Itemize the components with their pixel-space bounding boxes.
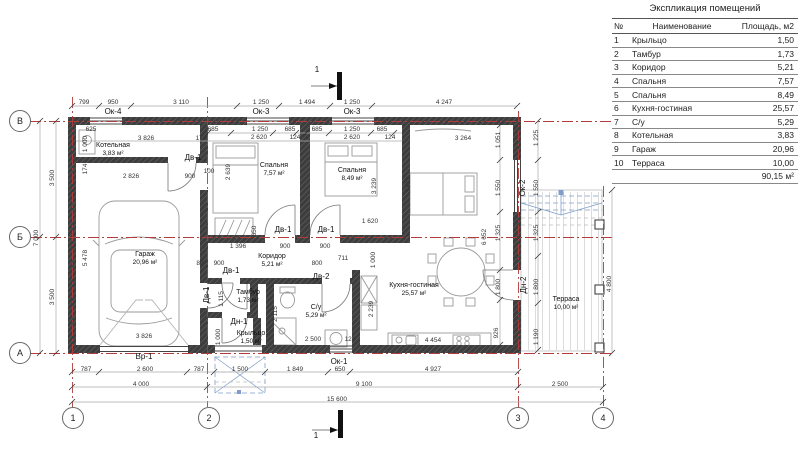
dimension-label: 4 927: [425, 367, 441, 374]
dimension-label: 1 225: [534, 130, 541, 146]
dimension-label: 6 652: [482, 229, 489, 245]
opening-tag: Ок-1: [331, 358, 348, 366]
opening-tag: Дн-1: [231, 318, 248, 326]
dimension-label: 7 000: [34, 230, 41, 246]
room-label: Терраса10,00 м²: [553, 295, 580, 313]
dimension-label: 3 500: [50, 289, 57, 305]
opening-tag: Дв-1: [203, 287, 211, 304]
dimension-label: 174: [196, 136, 207, 143]
dimension-label: 3 826: [136, 334, 152, 341]
dimension-label: 800: [312, 261, 323, 268]
room-label: Котельная3,83 м²: [96, 141, 130, 159]
dimension-label: 1 250: [344, 100, 360, 107]
dimension-label: 787: [194, 367, 205, 374]
dimension-label: 5 478: [83, 250, 90, 266]
dimension-label: 100: [204, 169, 215, 176]
dimension-label: 1 325: [496, 225, 503, 241]
opening-tag: Ок-3: [253, 108, 270, 116]
dimension-label: 1 800: [496, 279, 503, 295]
room-label: Кухня-гостиная25,57 м²: [389, 281, 439, 299]
table-row: 8Котельная3,83: [612, 129, 798, 143]
dimension-label: 3 413: [406, 177, 413, 193]
dimension-label: 650: [252, 226, 259, 237]
dimension-label: 1 550: [534, 180, 541, 196]
dimension-label: 1 250: [344, 127, 360, 134]
schedule-rows: 1Крыльцо1,502Тамбур1,733Коридор5,214Спал…: [612, 34, 798, 170]
grid-bubble: А: [9, 342, 31, 364]
dimension-label: 1 190: [534, 329, 541, 345]
table-row: 7С/у5,29: [612, 116, 798, 130]
dimension-label: 900: [280, 244, 291, 251]
grid-bubble: Б: [9, 226, 31, 248]
table-row: 4Спальня7,57: [612, 75, 798, 89]
dimension-label: 685: [285, 127, 296, 134]
opening-tag: Вр-1: [136, 353, 153, 361]
room-label: Коридор5,21 м²: [258, 252, 286, 270]
room-label: Спальня8,49 м²: [338, 166, 366, 184]
grid-bubble: В: [9, 110, 31, 132]
dimension-label: 80: [196, 261, 203, 268]
dimension-label: 1 849: [287, 367, 303, 374]
schedule-total: 90,15 м²: [612, 170, 798, 184]
dimension-label: 1 250: [253, 100, 269, 107]
room-schedule-table: Экспликация помещений № Наименование Пло…: [612, 3, 798, 184]
opening-tag: Ок-4: [105, 108, 122, 116]
dimension-label: 2 620: [251, 135, 267, 142]
opening-tag: Ок-3: [344, 108, 361, 116]
dimension-label: 650: [335, 367, 346, 374]
dimension-label: 3 264: [455, 136, 471, 143]
dimension-label: 787: [81, 367, 92, 374]
dimension-label: 124: [290, 135, 301, 142]
grid-bubble: 2: [198, 407, 220, 429]
schedule-header: № Наименование Площадь, м2: [612, 18, 798, 34]
table-row: 10Терраса10,00: [612, 156, 798, 170]
dimension-label: 1 115: [219, 291, 226, 307]
opening-tag: Дв-1: [185, 154, 202, 162]
dimension-label: 1 500: [232, 367, 248, 374]
dimension-label: 124: [385, 135, 396, 142]
table-row: 5Спальня8,49: [612, 88, 798, 102]
dimension-label: 685: [208, 127, 219, 134]
opening-tag: Дн-2: [520, 277, 528, 294]
opening-tag: Дв-1: [223, 267, 240, 275]
table-row: 1Крыльцо1,50: [612, 34, 798, 48]
opening-tag: Дв-1: [275, 226, 292, 234]
dimension-label: 1 800: [534, 279, 541, 295]
dimension-label: 2 639: [226, 164, 233, 180]
room-label: Крыльцо1,50 м²: [237, 329, 266, 347]
dimension-label: 4 454: [425, 338, 441, 345]
grid-bubble: 3: [507, 407, 529, 429]
dimension-label: 1 494: [299, 100, 315, 107]
dimension-label: 685: [312, 127, 323, 134]
dimension-label: 9 100: [356, 382, 372, 389]
dimension-label: 1 396: [230, 244, 246, 251]
room-label: С/у5,29 м²: [305, 303, 326, 321]
dimension-label: 926: [494, 328, 501, 339]
opening-tag: Дв-1: [318, 226, 335, 234]
dimension-label: 2 500: [552, 382, 568, 389]
dimension-label: 3 500: [50, 170, 57, 186]
dimension-label: 1 250: [252, 127, 268, 134]
dimension-label: 1 000: [216, 329, 223, 345]
dimension-label: 15 600: [327, 397, 347, 404]
section-label: 1: [314, 432, 318, 440]
schedule-header-area: Площадь, м2: [732, 21, 798, 31]
dimension-label: 4 247: [436, 100, 452, 107]
table-row: 9Гараж20,96: [612, 143, 798, 157]
grid-bubble: 1: [62, 407, 84, 429]
dimension-label: 625: [86, 127, 97, 134]
dimension-label: 1 000: [83, 136, 90, 152]
room-label: Тамбур1,73 м²: [236, 288, 260, 306]
dimension-label: 1 620: [362, 219, 378, 226]
grid-bubble: 4: [592, 407, 614, 429]
dimension-label: 711: [338, 256, 348, 263]
dimension-label: 1 051: [496, 132, 503, 148]
table-row: 6Кухня-гостиная25,57: [612, 102, 798, 116]
schedule-title: Экспликация помещений: [612, 3, 798, 14]
dimension-label: 900: [185, 174, 196, 181]
dimension-label: 2 500: [305, 337, 321, 344]
room-label: Гараж20,96 м²: [133, 250, 158, 268]
dimension-label: 3 110: [173, 100, 189, 107]
table-row: 2Тамбур1,73: [612, 48, 798, 62]
opening-tag: Дв-2: [313, 273, 330, 281]
section-label: 1: [315, 66, 319, 74]
dimension-label: 799: [79, 100, 90, 107]
dimension-label: 1 325: [534, 225, 541, 241]
dimension-label: 174: [83, 164, 90, 175]
dimension-label: 2 600: [137, 367, 153, 374]
dimension-label: 1 000: [371, 252, 378, 268]
dimension-label: 3 239: [372, 178, 379, 194]
dimension-label: 950: [108, 100, 119, 107]
dimension-label: 3 826: [138, 136, 154, 143]
schedule-header-num: №: [612, 21, 632, 31]
schedule-header-name: Наименование: [632, 21, 732, 31]
dimension-label: 900: [320, 244, 331, 251]
dimension-label: 2 620: [344, 135, 360, 142]
floor-plan-sheet: 7999503 1101 2501 4941 2504 2476256851 2…: [0, 0, 800, 461]
room-label: Спальня7,57 м²: [260, 161, 288, 179]
dimension-label: 2 239: [369, 301, 376, 317]
opening-tag: Ок-2: [519, 180, 527, 197]
dimension-label: 1 550: [496, 180, 503, 196]
dimension-label: 2 826: [123, 174, 139, 181]
dimension-label: 685: [377, 127, 388, 134]
table-row: 3Коридор5,21: [612, 61, 798, 75]
dimension-label: 2 115: [273, 306, 280, 322]
dimension-label: 4 800: [607, 276, 614, 292]
dimension-label: 124: [345, 337, 356, 344]
dimension-label: 4 000: [133, 382, 149, 389]
